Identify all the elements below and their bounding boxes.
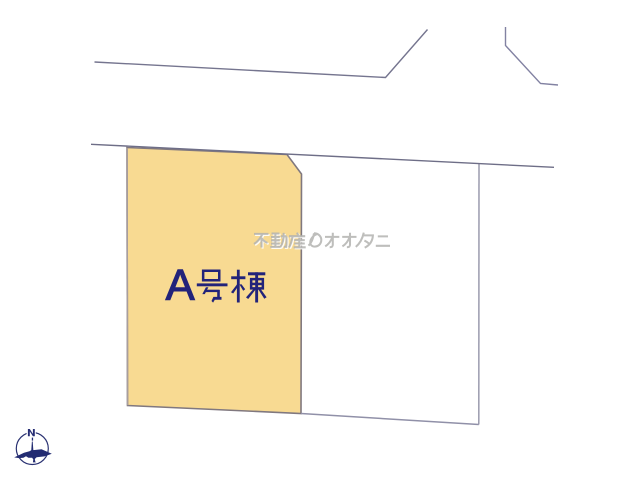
svg-text:A: A bbox=[166, 262, 195, 310]
